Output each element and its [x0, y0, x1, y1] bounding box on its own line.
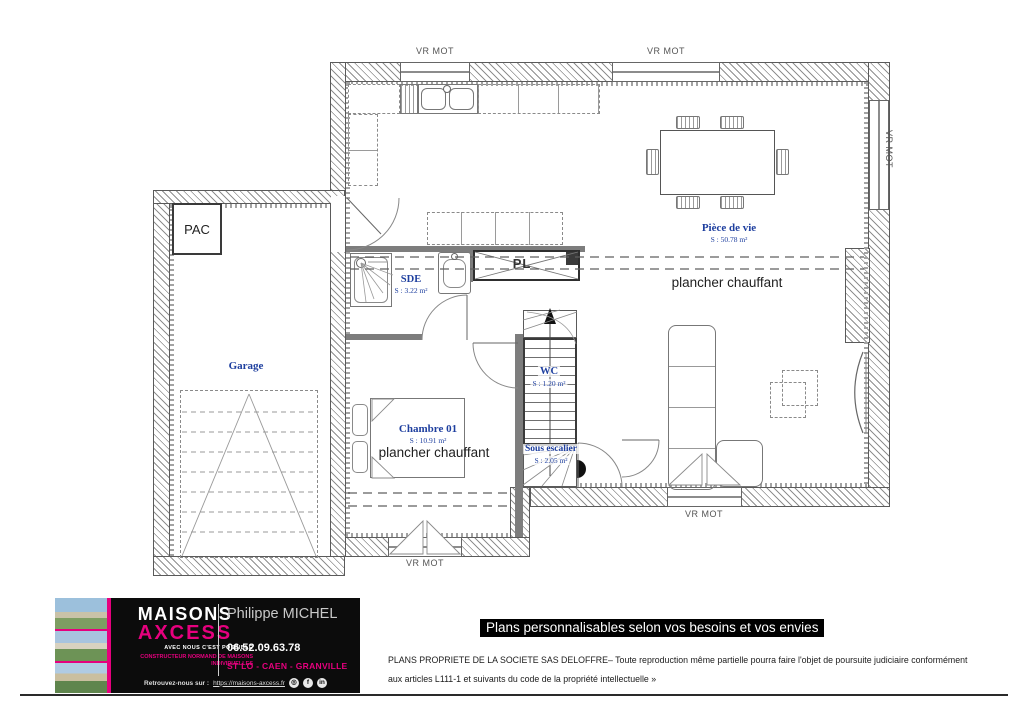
room-area-piece-de-vie: S : 50.78 m² [711, 235, 748, 244]
legal-line-2: aux articles L111-1 et suivants du code … [388, 674, 656, 684]
shutter-label-bottom-left: VR MOT [406, 558, 444, 568]
kitchen-counter-top-b [478, 84, 600, 114]
pac-label: PAC [184, 222, 210, 237]
kitchen-sink-bowl-1 [421, 88, 446, 110]
dining-chair [676, 116, 700, 129]
banner-title: Plans personnalisables selon vos besoins… [480, 619, 824, 637]
garage-wall-left [153, 190, 170, 576]
window-chambre [388, 537, 462, 557]
agent-phone: 06.52.09.63.78 [227, 642, 300, 654]
dining-chair [720, 116, 744, 129]
heating-label-living: plancher chauffant [672, 275, 783, 290]
room-label-wc: WC [538, 366, 560, 377]
photo-strip [55, 598, 107, 693]
dining-chair [720, 196, 744, 209]
shutter-label-bottom-right: VR MOT [685, 509, 723, 519]
shutter-label-top-right: VR MOT [647, 46, 685, 56]
sofa-chaise [716, 440, 763, 487]
find-us-label: Retrouvez-nous sur : [144, 680, 209, 687]
shower-tray [354, 257, 388, 303]
parking-space [180, 390, 318, 558]
dining-chair [776, 149, 789, 175]
stairs [523, 338, 577, 445]
heating-label-chambre: plancher chauffant [379, 445, 490, 460]
room-area-sous-escalier: S : 2.05 m² [532, 456, 569, 465]
linkedin-icon: in [317, 678, 327, 688]
room-label-piece-de-vie: Pièce de vie [702, 222, 756, 234]
house-photo [55, 631, 107, 663]
kitchen-counter-top-a [348, 84, 400, 114]
house-photo [55, 598, 107, 631]
coffee-table [770, 382, 806, 418]
footer-divider [218, 604, 219, 676]
bottom-rule [20, 694, 1008, 696]
instagram-icon: ◎ [289, 678, 299, 688]
room-area-chambre: S : 10.91 m² [410, 436, 447, 445]
shutter-label-right: VR MOT [884, 130, 894, 168]
footer-card: MAISONS AXCESS AVEC NOUS C'EST POSSIBLE … [55, 598, 360, 693]
room-label-sous-escalier: Sous escalier [523, 444, 579, 454]
dining-chair [646, 149, 659, 175]
kitchen-sink-bowl-2 [449, 88, 474, 110]
kitchen-counter-left [348, 114, 378, 186]
window-dining [612, 62, 720, 82]
insulation-garage-left [170, 204, 174, 556]
stairs-top-winder [523, 310, 577, 338]
closet-label-pl: PL [513, 256, 532, 271]
legal-line-1: PLANS PROPRIETE DE LA SOCIETE SAS DELOFF… [388, 655, 967, 665]
kitchen-island [427, 212, 563, 245]
wall-sde-bottom [346, 334, 422, 340]
wall-left [330, 62, 346, 557]
washbasin-bowl [443, 259, 466, 288]
house-photo [55, 663, 107, 693]
room-label-chambre: Chambre 01 [399, 423, 457, 435]
washbasin-faucet [451, 253, 458, 260]
window-living [667, 487, 742, 507]
kitchen-drainboard [400, 84, 418, 114]
dining-chair [676, 196, 700, 209]
dining-table [660, 130, 775, 195]
room-area-wc: S : 1.20 m² [530, 379, 567, 388]
agent-cities: ST LO - CAEN - GRANVILLE [227, 661, 348, 671]
room-area-sde: S : 3.22 m² [394, 286, 427, 295]
website-link[interactable]: https://maisons-axcess.fr [213, 680, 285, 687]
shutter-label-top-left: VR MOT [416, 46, 454, 56]
floor-plan-sheet: PAC [0, 0, 1024, 724]
pillow [352, 404, 368, 436]
brand-axcess: AXCESS [117, 623, 253, 643]
wall-hall [515, 334, 523, 537]
insulation-right [864, 82, 868, 487]
window-kitchen [400, 62, 470, 82]
sofa-long [668, 325, 716, 490]
room-label-garage: Garage [229, 360, 264, 372]
agent-name: Philippe MICHEL [227, 606, 337, 622]
pillow [352, 441, 368, 473]
stair-post [577, 460, 586, 478]
footer-bottom-row: Retrouvez-nous sur : https://maisons-axc… [111, 678, 360, 688]
entrance-opening [331, 196, 345, 252]
facebook-icon: f [303, 678, 313, 688]
pac-unit: PAC [172, 203, 222, 255]
kitchen-faucet [443, 85, 451, 93]
room-label-sde: SDE [401, 274, 421, 285]
closet-pl-block [566, 252, 578, 265]
garage-wall-bottom [153, 556, 345, 576]
garage-wall-top [153, 190, 345, 204]
